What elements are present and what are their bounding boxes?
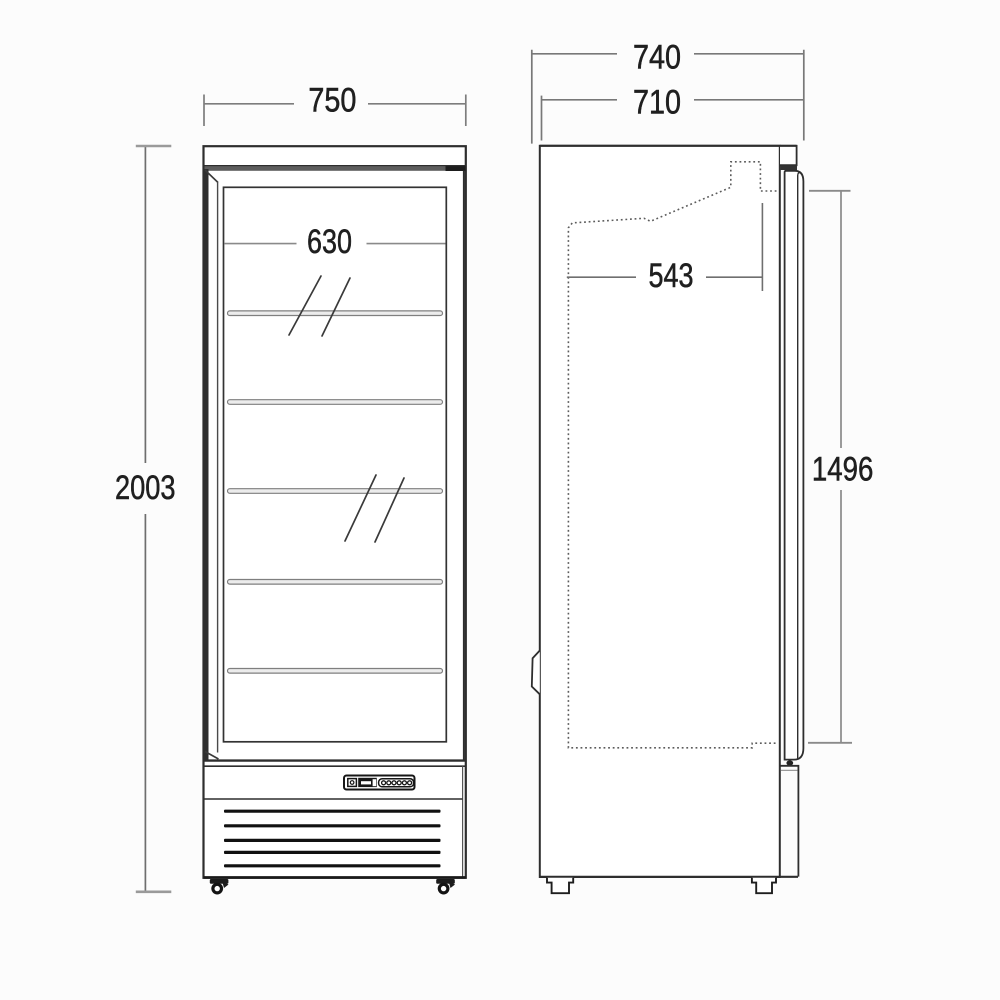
svg-text:1496: 1496: [812, 451, 874, 489]
svg-text:543: 543: [649, 257, 694, 295]
svg-text:740: 740: [633, 39, 681, 77]
svg-text:750: 750: [308, 82, 356, 120]
svg-text:710: 710: [633, 84, 681, 122]
svg-text:2003: 2003: [115, 469, 176, 507]
svg-text:630: 630: [307, 223, 352, 261]
